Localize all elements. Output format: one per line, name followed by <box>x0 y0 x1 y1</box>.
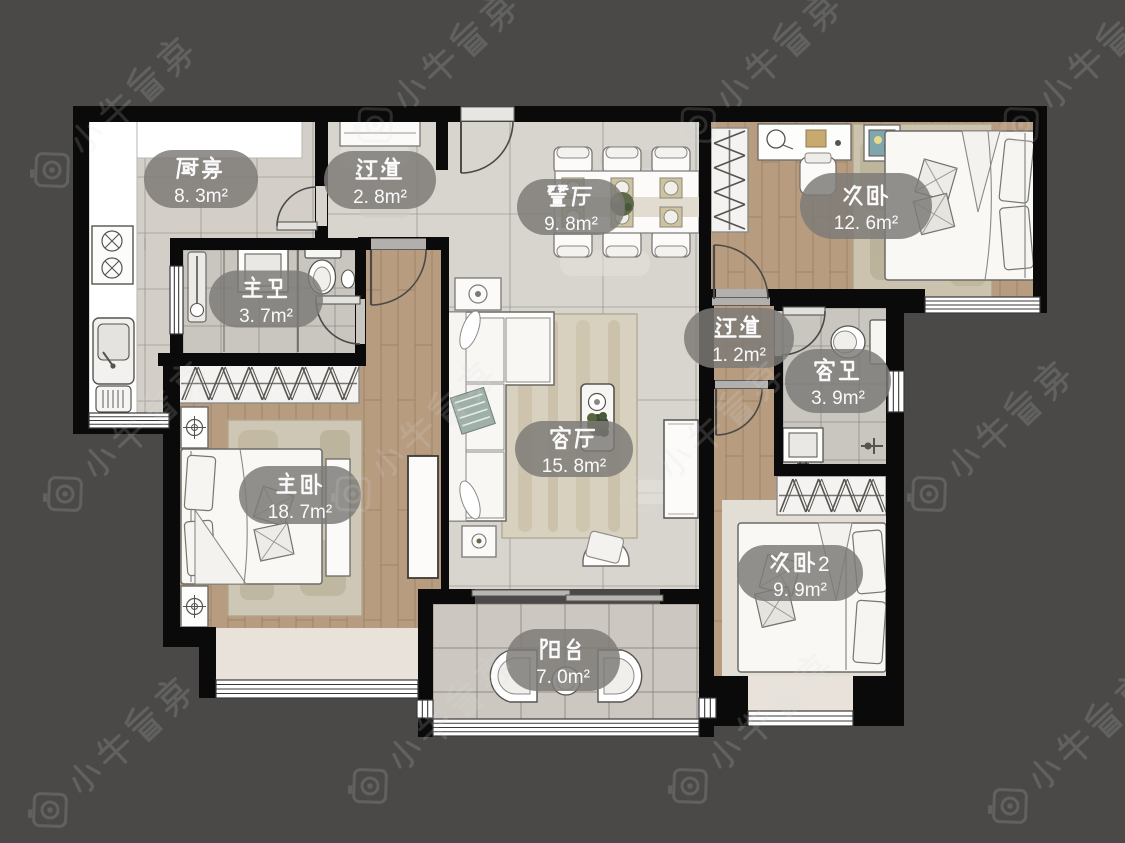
svg-text:18. 7m²: 18. 7m² <box>268 502 332 523</box>
svg-text:2: 2 <box>818 553 830 576</box>
svg-text:7. 0m²: 7. 0m² <box>536 667 590 688</box>
svg-text:9. 8m²: 9. 8m² <box>544 214 598 235</box>
svg-text:3. 9m²: 3. 9m² <box>811 388 865 409</box>
svg-text:3. 7m²: 3. 7m² <box>239 306 293 327</box>
svg-text:1. 2m²: 1. 2m² <box>712 345 766 366</box>
svg-text:15. 8m²: 15. 8m² <box>542 456 606 477</box>
svg-text:12. 6m²: 12. 6m² <box>834 213 898 234</box>
svg-text:8. 3m²: 8. 3m² <box>174 186 228 207</box>
svg-text:2. 8m²: 2. 8m² <box>353 187 407 208</box>
svg-text:9. 9m²: 9. 9m² <box>773 580 827 601</box>
